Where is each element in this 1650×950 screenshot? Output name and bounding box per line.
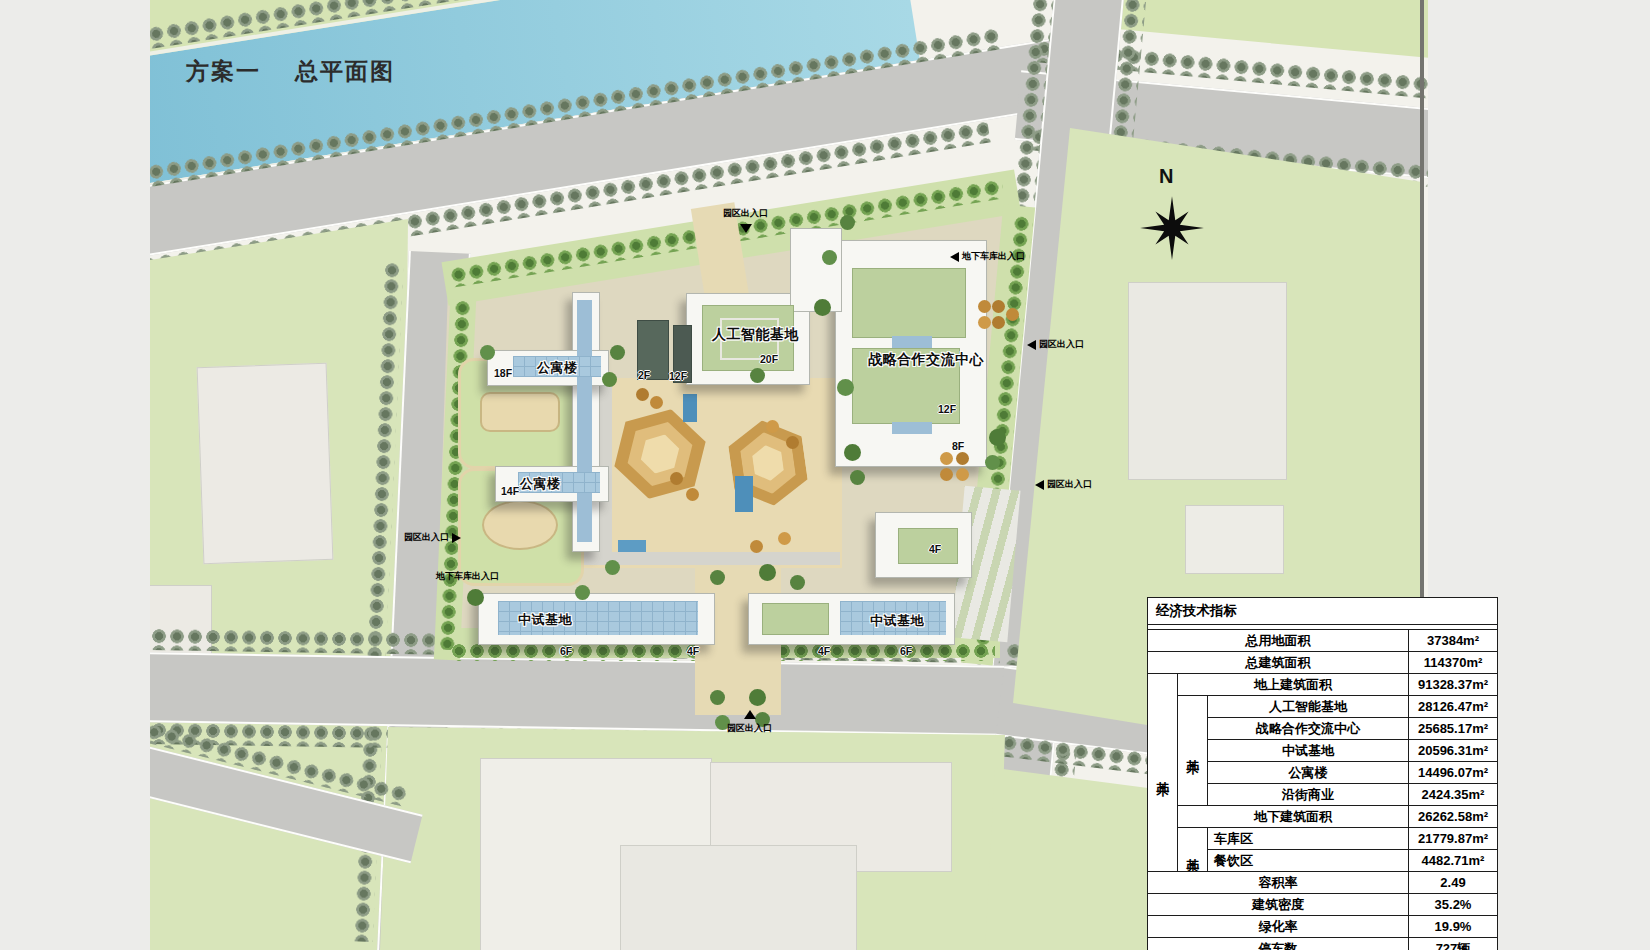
small-4f-green-roof: [898, 528, 958, 564]
strategic-center-north-wing: [790, 228, 842, 312]
podium-2f-floor-label: 2F: [638, 369, 650, 381]
row-value: 25685.17m²: [1409, 718, 1498, 740]
qizhong-outer-cell: 其中: [1148, 674, 1178, 872]
table-row: 其中 地上建筑面积 91328.37m²: [1148, 674, 1498, 696]
ai-base-floor-label: 20F: [760, 353, 778, 365]
pilot-east-floor-b-label: 6F: [900, 645, 912, 657]
table-row: 地下建筑面积 26262.58m²: [1148, 806, 1498, 828]
pilot-base-west-label: 中试基地: [518, 611, 572, 629]
row-value: 20596.31m²: [1409, 740, 1498, 762]
small-4f-floor-label: 4F: [929, 543, 941, 555]
existing-building-south-3: [620, 845, 857, 950]
row-label: 建筑密度: [1148, 894, 1409, 916]
row-value: 37384m²: [1409, 630, 1498, 652]
existing-building-east-1: [1128, 282, 1287, 480]
pool-north: [683, 394, 697, 422]
strategic-glass-link-1: [892, 336, 932, 348]
site-plan-stage: 公寓楼 18F 公寓楼 14F 人工智能基地 20F 2F 12F 战略合作交流…: [0, 0, 1650, 950]
page-title-part1: 方案一: [186, 58, 261, 84]
pool-south: [618, 540, 646, 552]
row-label: 人工智能基地: [1208, 696, 1409, 718]
table-row: 其中 人工智能基地 28126.47m²: [1148, 696, 1498, 718]
entrance-right-lower: 园区出入口: [1035, 478, 1092, 491]
qizhong-inner-cell: 其中: [1178, 696, 1208, 806]
strategic-center-label: 战略合作交流中心: [868, 351, 984, 369]
page-title: 方案一总平面图: [186, 56, 395, 87]
table-row: 容积率 2.49: [1148, 872, 1498, 894]
row-label: 绿化率: [1148, 916, 1409, 938]
green-trees-cluster: [602, 372, 617, 387]
table-row: 停车数 727辆: [1148, 938, 1498, 950]
apartment-2-label: 公寓楼: [520, 475, 561, 493]
pilot-base-east-label: 中试基地: [870, 612, 924, 630]
row-label: 中试基地: [1208, 740, 1409, 762]
table-row: 建筑密度 35.2%: [1148, 894, 1498, 916]
row-value: 2.49: [1409, 872, 1498, 894]
entrance-arrow-left-icon: [1035, 480, 1044, 490]
apartment-1-floor-label: 18F: [494, 367, 512, 379]
apartment-2-floor-label: 14F: [501, 485, 519, 497]
pilot-east-floor-a-label: 4F: [818, 645, 830, 657]
entrance-top-label: 园区出入口: [723, 207, 768, 220]
entrance-arrow-up-icon: [744, 710, 756, 719]
entrance-arrow-down-icon: [740, 224, 752, 233]
row-label: 车库区: [1208, 828, 1409, 850]
strategic-glass-link-2: [892, 422, 932, 434]
page-title-part2: 总平面图: [295, 58, 395, 84]
strategic-tower-green-roof-north: [852, 268, 966, 338]
row-value: 4482.71m²: [1409, 850, 1498, 872]
entrance-arrow-right-icon: [452, 533, 461, 543]
table-row: 其中 车库区 21779.87m²: [1148, 828, 1498, 850]
compass-star-icon: [1138, 194, 1206, 262]
existing-building-west-1: [197, 363, 334, 564]
pool-central: [735, 476, 753, 512]
row-label: 地下建筑面积: [1178, 806, 1409, 828]
table-row: 总建筑面积 114370m²: [1148, 652, 1498, 674]
podium-12f-floor-label: 12F: [669, 370, 687, 382]
strategic-12f-floor-label: 12F: [938, 403, 956, 415]
row-label: 公寓楼: [1208, 762, 1409, 784]
compass-north-label: N: [1159, 165, 1173, 188]
row-value: 2424.35m²: [1409, 784, 1498, 806]
entrance-garage-left: 地下车库出入口: [436, 570, 499, 583]
entrance-bottom-label: 园区出入口: [727, 722, 772, 735]
existing-building-east-2: [1185, 505, 1284, 574]
entrance-left-label: 园区出入口: [404, 531, 449, 544]
pilot-base-east-green-roof: [762, 603, 829, 635]
entrance-garage-left-label: 地下车库出入口: [436, 570, 499, 583]
row-value: 727辆: [1409, 938, 1498, 950]
row-value: 19.9%: [1409, 916, 1498, 938]
table-header-row: 经济技术指标: [1148, 598, 1498, 625]
row-label: 地上建筑面积: [1178, 674, 1409, 696]
row-value: 26262.58m²: [1409, 806, 1498, 828]
table-row: 总用地面积 37384m²: [1148, 630, 1498, 652]
row-label: 餐饮区: [1208, 850, 1409, 872]
row-value: 28126.47m²: [1409, 696, 1498, 718]
row-label: 总建筑面积: [1148, 652, 1409, 674]
entrance-arrow-left-icon: [1027, 340, 1036, 350]
row-label: 停车数: [1148, 938, 1409, 950]
apartment-1-label: 公寓楼: [537, 359, 578, 377]
economic-indicators-table: 经济技术指标 总用地面积 37384m² 总建筑面积 114370m² 其中 地…: [1147, 597, 1498, 950]
qizhong-below-cell: 其中: [1178, 828, 1208, 872]
entrance-bottom: 园区出入口: [727, 710, 772, 735]
pilot-west-floor-b-label: 4F: [687, 645, 699, 657]
row-value: 14496.07m²: [1409, 762, 1498, 784]
row-value: 114370m²: [1409, 652, 1498, 674]
pilot-west-floor-a-label: 6F: [560, 645, 572, 657]
west-long-slab-glass: [577, 300, 592, 542]
courtyard-garden-north-path: [480, 392, 560, 432]
orange-trees-cluster: [978, 300, 991, 313]
row-value: 91328.37m²: [1409, 674, 1498, 696]
row-value: 21779.87m²: [1409, 828, 1498, 850]
strategic-8f-floor-label: 8F: [952, 440, 964, 452]
row-value: 35.2%: [1409, 894, 1498, 916]
entrance-right-upper: 园区出入口: [1027, 338, 1084, 351]
entrance-garage-right: 地下车库出入口: [950, 250, 1025, 263]
table-row: 绿化率 19.9%: [1148, 916, 1498, 938]
ai-base-label: 人工智能基地: [712, 326, 799, 344]
entrance-right-lower-label: 园区出入口: [1047, 478, 1092, 491]
entrance-right-upper-label: 园区出入口: [1039, 338, 1084, 351]
row-label: 总用地面积: [1148, 630, 1409, 652]
entrance-arrow-left-icon: [950, 252, 959, 262]
table-title: 经济技术指标: [1148, 598, 1498, 625]
entrance-top: 园区出入口: [723, 207, 768, 233]
courtyard-garden-south-path: [482, 500, 558, 550]
row-label: 沿街商业: [1208, 784, 1409, 806]
entrance-left: 园区出入口: [404, 531, 461, 544]
row-label: 容积率: [1148, 872, 1409, 894]
row-label: 战略合作交流中心: [1208, 718, 1409, 740]
entrance-garage-right-label: 地下车库出入口: [962, 250, 1025, 263]
